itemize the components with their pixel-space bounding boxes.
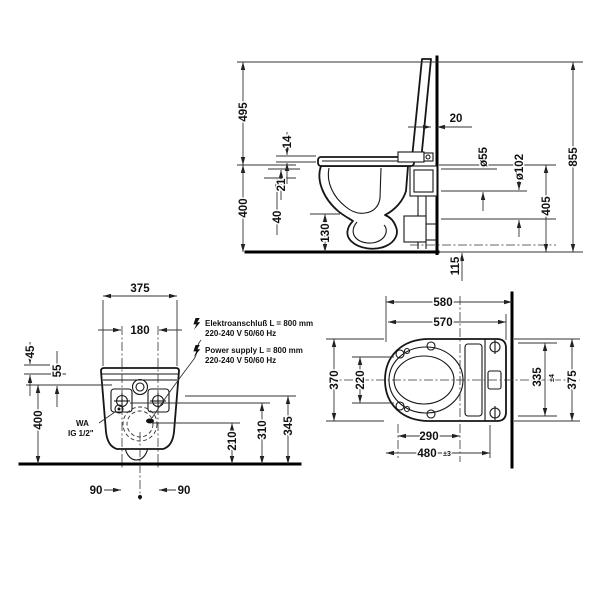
technical-drawing: 495 400 14 21 40 130 20 ø55 ø102 405 855… [0, 0, 600, 600]
dim-310: 310 [257, 420, 269, 439]
toilet-side-profile [318, 59, 437, 249]
dim-dia-55: ø55 [478, 146, 490, 166]
dim-40: 40 [272, 211, 284, 224]
dim-14: 14 [282, 135, 294, 148]
dim-335: 335 [532, 367, 544, 387]
power-label-en-1: Power supply L = 800 mm [205, 346, 303, 355]
drawing-canvas: 495 400 14 21 40 130 20 ø55 ø102 405 855… [0, 0, 600, 600]
dim-90-right: 90 [178, 485, 191, 497]
dim-570: 570 [433, 317, 452, 329]
dim-400-back: 400 [33, 410, 45, 429]
dim-495: 495 [238, 102, 250, 122]
dim-855: 855 [568, 147, 580, 167]
dim-180: 180 [130, 325, 149, 337]
side-view: 495 400 14 21 40 130 20 ø55 ø102 405 855… [237, 57, 583, 281]
back-view: 375 180 45 55 400 90 90 210 310 345 WA I… [20, 283, 313, 500]
dim-345: 345 [283, 416, 295, 436]
dim-90-left: 90 [90, 485, 103, 497]
top-view: 580 570 370 220 335 ±4 375 290 480 ±3 [326, 293, 580, 467]
dim-45: 45 [25, 345, 37, 358]
dim-480: 480 [417, 448, 436, 460]
power-label-de-1: Elektroanschluß L = 800 mm [205, 319, 313, 328]
dim-370: 370 [329, 370, 341, 389]
dim-335-tolerance: ±4 [549, 374, 556, 382]
lightning-bolt-icon [193, 345, 200, 357]
wa-size-label: IG 1/2" [68, 429, 94, 438]
dim-580: 580 [433, 297, 452, 309]
dim-400-side: 400 [238, 198, 250, 217]
dim-290: 290 [419, 431, 438, 443]
dim-dia-102: ø102 [514, 154, 526, 180]
dim-20: 20 [450, 113, 463, 125]
dim-220: 220 [355, 370, 367, 389]
dim-405: 405 [541, 196, 553, 216]
power-label-de-2: 220-240 V 50/60 Hz [205, 329, 276, 338]
side-dimension-labels: 495 400 14 21 40 130 20 ø55 ø102 405 855… [238, 102, 580, 275]
dim-375-top: 375 [567, 370, 579, 390]
dim-480-tolerance: ±3 [443, 451, 451, 458]
wa-label: WA [76, 419, 89, 428]
dim-115: 115 [450, 256, 462, 275]
bowl-outline [319, 166, 408, 249]
dim-130: 130 [320, 223, 332, 242]
dim-375-back: 375 [130, 283, 150, 295]
dim-55: 55 [52, 364, 64, 377]
lightning-bolt-icon [193, 318, 200, 330]
dim-21: 21 [276, 178, 288, 191]
dim-210: 210 [227, 431, 239, 450]
power-label-en-2: 220-240 V 50/60 Hz [205, 356, 276, 365]
toilet-lid [412, 59, 431, 161]
